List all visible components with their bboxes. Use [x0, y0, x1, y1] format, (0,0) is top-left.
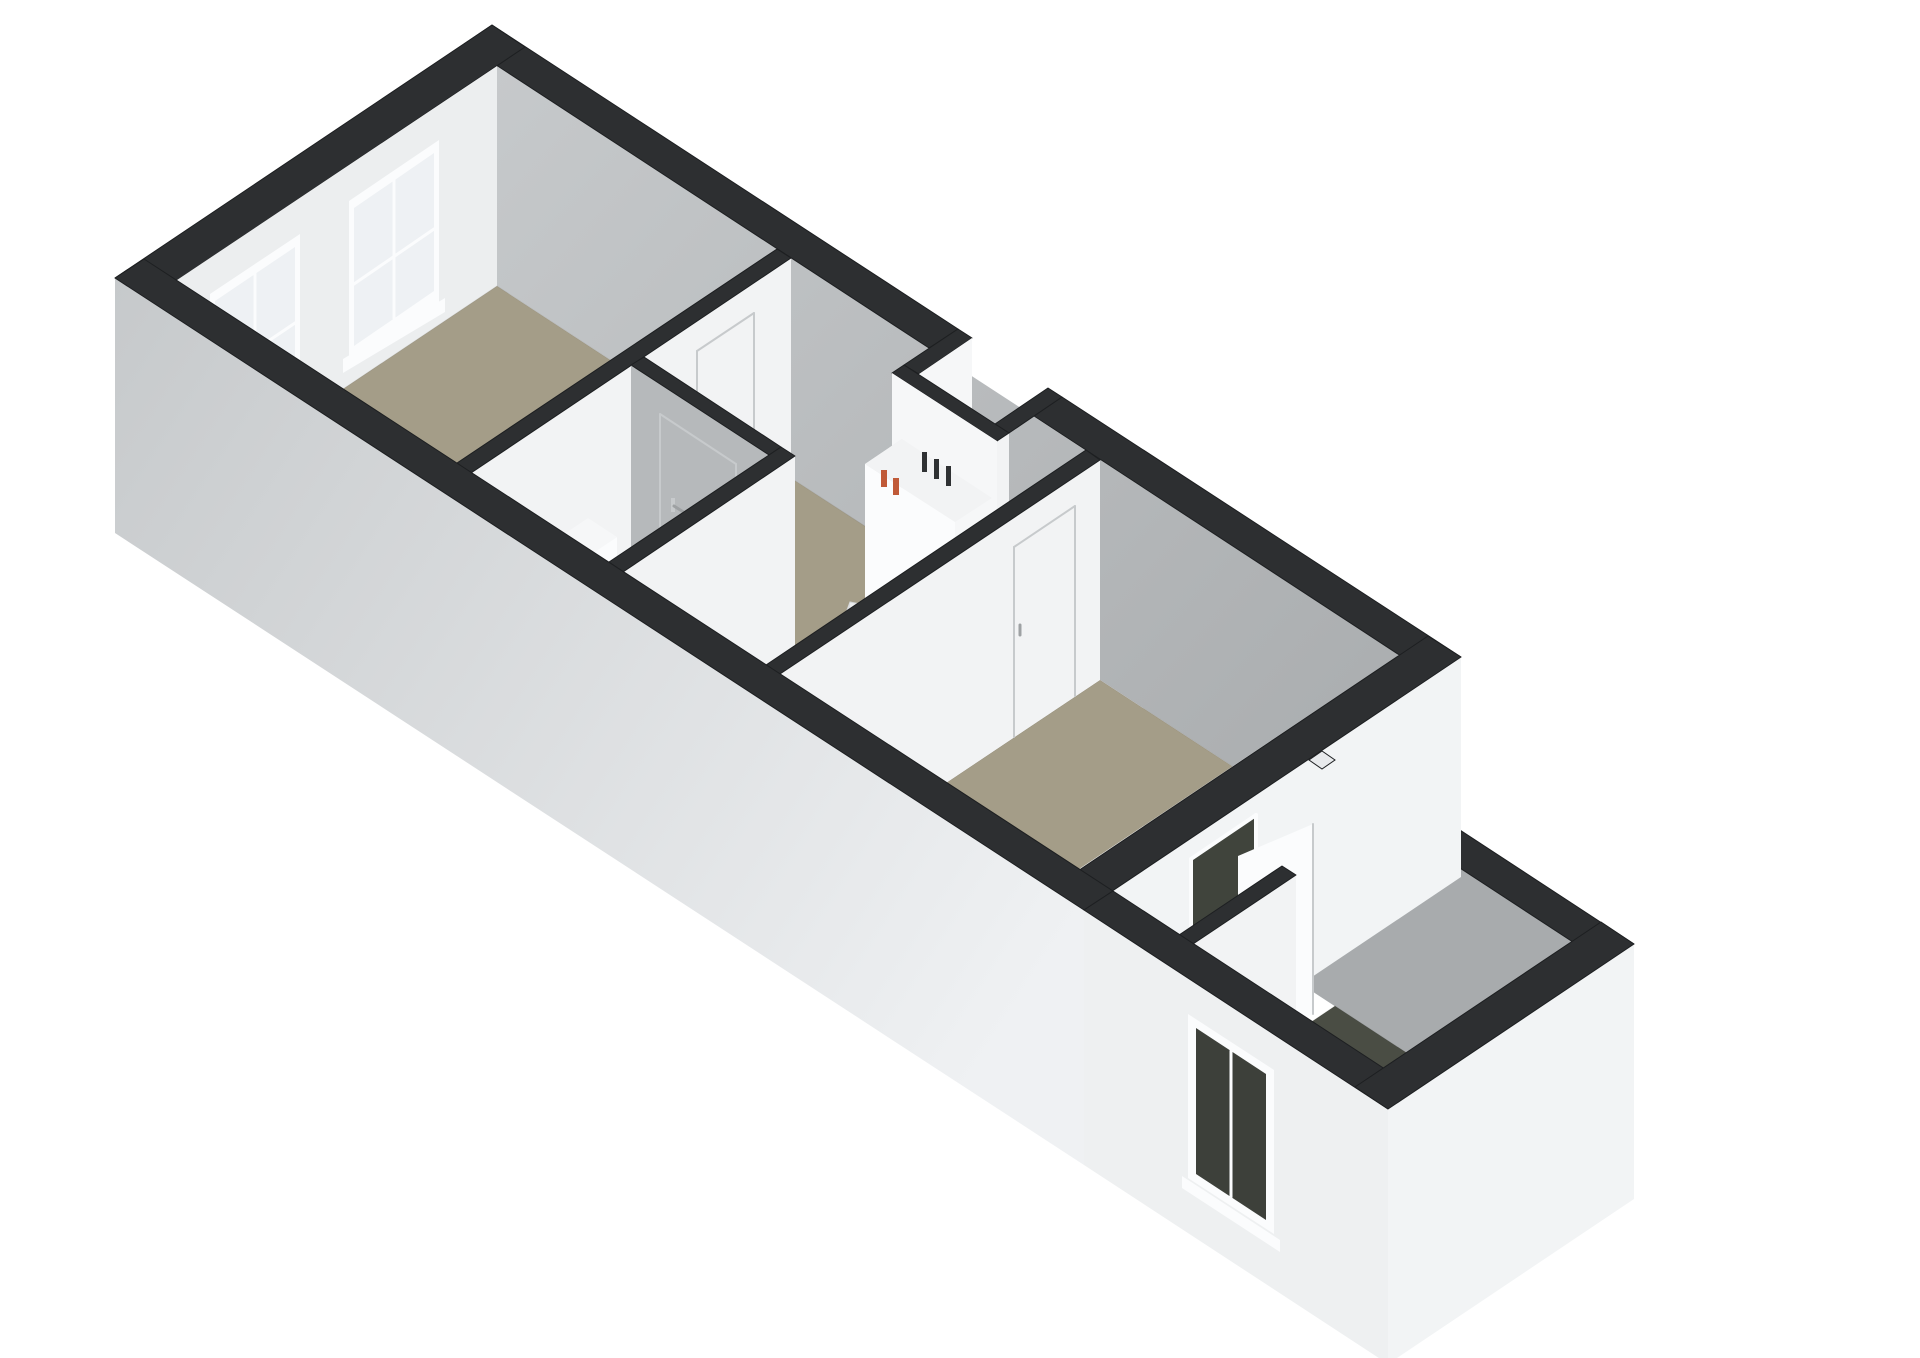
floorplan-canvas	[0, 0, 1920, 1358]
pipe-black	[922, 452, 927, 472]
pipe-orange	[893, 478, 899, 495]
pipe-black	[946, 466, 951, 486]
pipe-orange	[881, 470, 887, 487]
pipe-black	[934, 459, 939, 479]
floorplan-3d-render	[0, 0, 1920, 1358]
